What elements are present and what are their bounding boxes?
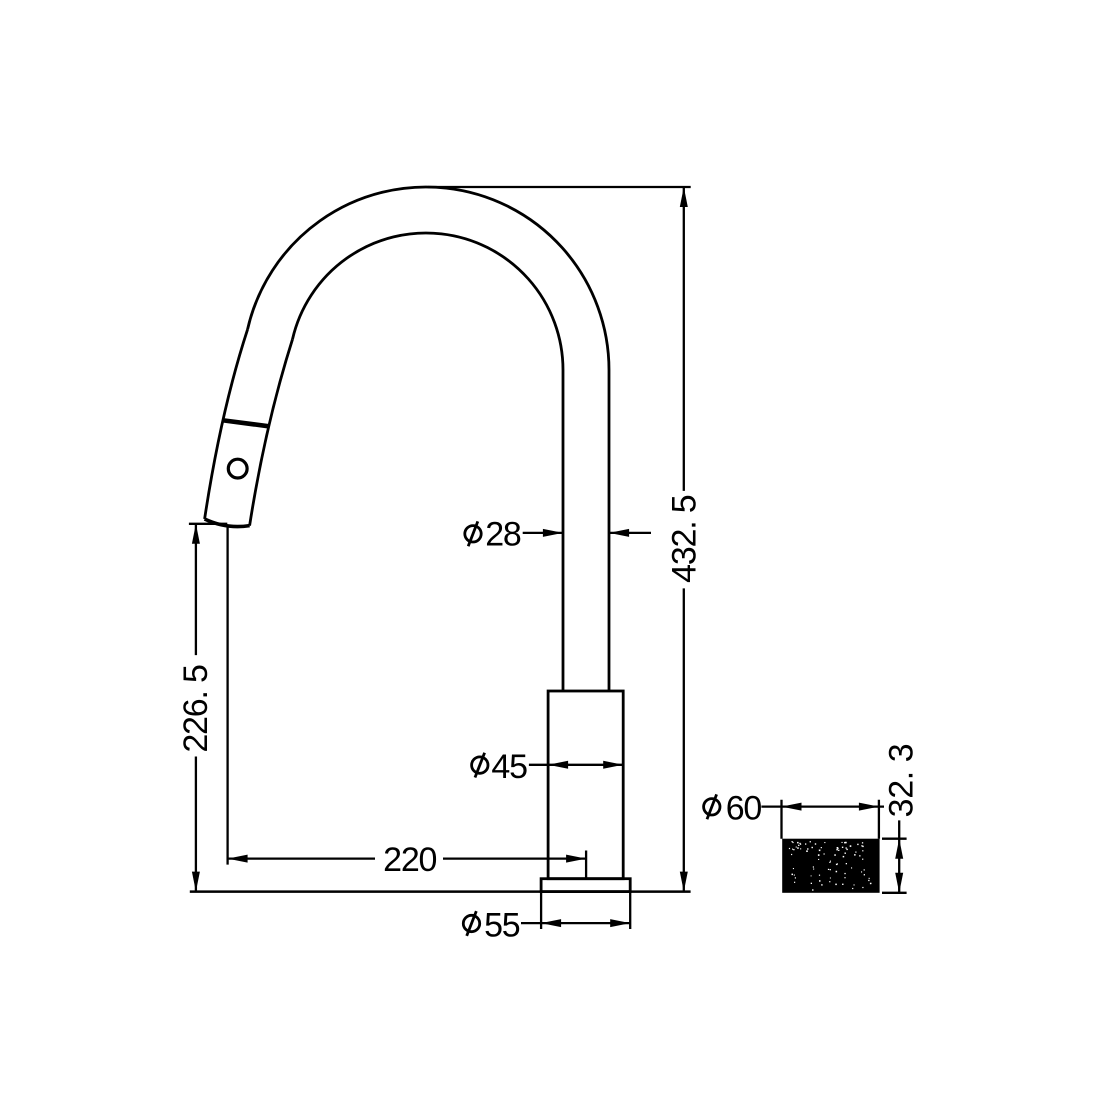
svg-text:220: 220 (383, 841, 436, 879)
svg-text:45: 45 (491, 748, 527, 786)
svg-text:55: 55 (484, 906, 520, 944)
svg-text:28: 28 (485, 516, 521, 554)
svg-text:32. 3: 32. 3 (883, 744, 921, 818)
svg-text:60: 60 (726, 790, 762, 828)
svg-text:432. 5: 432. 5 (666, 495, 704, 583)
svg-text:226. 5: 226. 5 (177, 665, 215, 753)
